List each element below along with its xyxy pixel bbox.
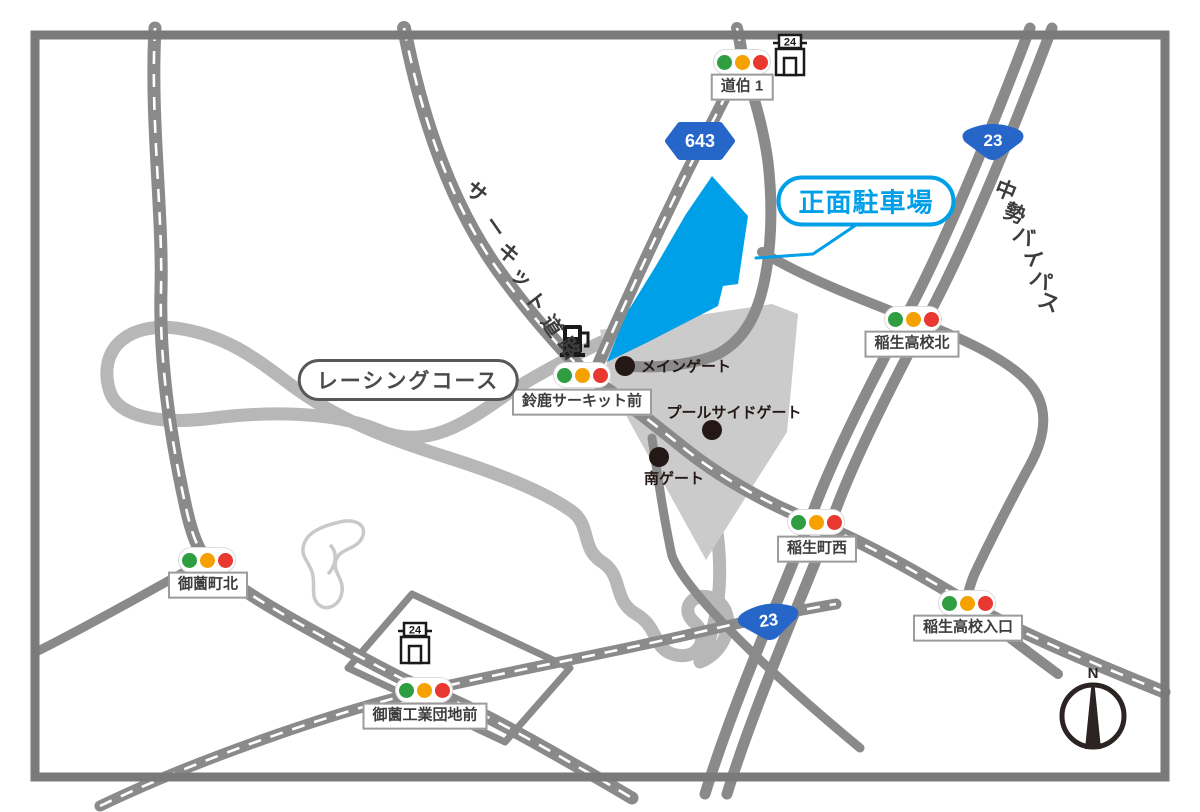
traffic-light-icon xyxy=(553,362,611,388)
traffic-light-icon xyxy=(395,677,453,703)
road-name-circuit-road: サ ー キ ッ ト 道 路 xyxy=(461,177,586,364)
convenience-store-icon: 24 xyxy=(773,35,807,75)
compass-north-label: N xyxy=(1088,665,1099,682)
south-gate-label: 南ゲート xyxy=(644,468,704,489)
racing-course-label: レーシングコース xyxy=(298,359,519,401)
store-24-badge: 24 xyxy=(784,37,797,49)
route-shield-643-number: 643 xyxy=(685,131,715,151)
intersection-label: 御薗町北 xyxy=(168,572,248,599)
route-shield-23-north-number: 23 xyxy=(984,131,1003,150)
svg-text:ス: ス xyxy=(1034,288,1062,317)
route-shield-23-south-number: 23 xyxy=(758,610,779,631)
south-gate-dot xyxy=(649,447,669,467)
route-shield-23-south: 23 xyxy=(736,600,801,644)
poolside-gate-dot xyxy=(702,420,722,440)
traffic-light-icon xyxy=(178,547,236,573)
route-shield-643: 643 xyxy=(668,125,732,157)
convenience-store-icon: 24 xyxy=(398,623,432,663)
mini-course-outline xyxy=(303,521,364,608)
store-24-badge: 24 xyxy=(409,625,422,637)
intersection-label: 御薗工業団地前 xyxy=(362,703,487,730)
main-gate-label: メインゲート xyxy=(641,356,731,377)
traffic-light-icon xyxy=(713,49,771,75)
traffic-light-icon xyxy=(884,306,942,332)
intersection-label: 稲生高校北 xyxy=(864,331,959,358)
map-canvas: 643 23 23 24 24 サ ー キ ッ ト 道 路 xyxy=(0,0,1200,812)
intersection-label: 鈴鹿サーキット前 xyxy=(512,389,652,416)
poolside-gate-label: プールサイドゲート xyxy=(666,402,801,423)
intersection-label: 道伯 1 xyxy=(711,74,774,101)
parking-callout: 正面駐車場 xyxy=(776,176,955,227)
traffic-light-icon xyxy=(938,590,996,616)
intersection-label: 稲生高校入口 xyxy=(913,615,1023,642)
traffic-light-icon xyxy=(787,509,845,535)
road-name-chusei-bypass: 中 勢 バ イ パ ス xyxy=(991,176,1062,317)
intersection-label: 稲生町西 xyxy=(777,536,857,563)
main-gate-dot xyxy=(615,356,635,376)
route-shield-23-north: 23 xyxy=(963,124,1024,160)
